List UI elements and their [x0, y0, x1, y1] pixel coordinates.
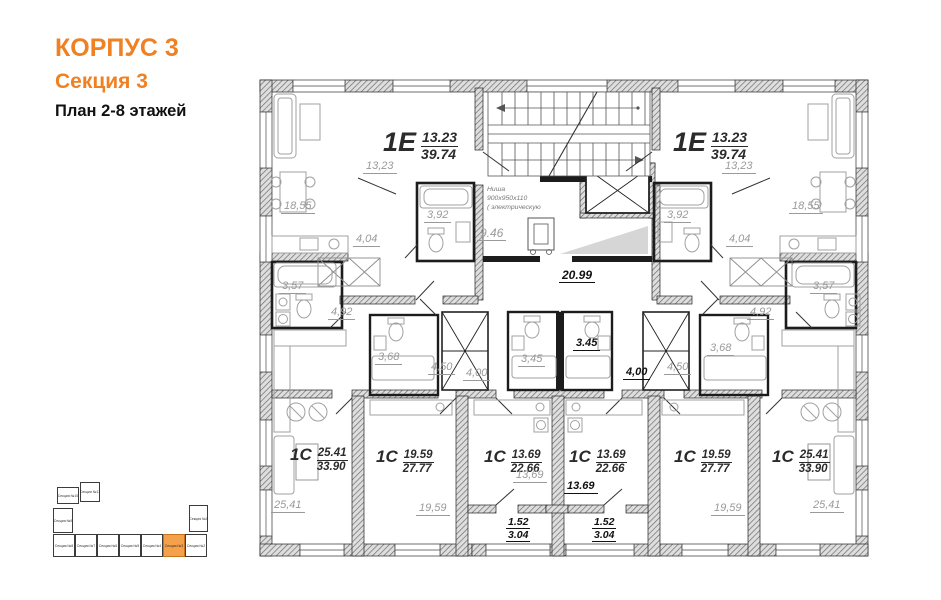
area-label-bath-c5: 3,68	[707, 343, 734, 356]
apartment-area-total: 27.77	[403, 463, 432, 476]
area-label-hall-e-left: 4,04	[353, 234, 380, 247]
apartment-label-1c-5: 1С 19.5927.77	[674, 449, 732, 476]
niche-note-line2: 900х950х110	[487, 195, 577, 204]
apartment-area-living: 25.41	[799, 449, 830, 463]
apartment-type: 1Е	[383, 130, 416, 154]
area-label-room-c2: 19,59	[416, 503, 450, 516]
apartment-label-1e-left: 1Е 13.2339.74	[383, 130, 458, 162]
apartment-type: 1С	[290, 447, 312, 462]
area-label-shaft-right-a: 4,00	[623, 367, 650, 380]
apartment-type: 1Е	[673, 130, 706, 154]
key-plan-section-3-highlighted[interactable]: Секция №3	[163, 534, 185, 557]
apartment-type: 1С	[569, 449, 591, 464]
area-label-dim-left: 13,23	[363, 161, 397, 174]
apartment-area-living: 13.69	[511, 449, 542, 463]
apartment-label-1c-4: 1С 13.6922.66	[569, 449, 627, 476]
balcony-area-full: 3.04	[506, 529, 530, 542]
area-label-bath-e-left: 3,92	[424, 210, 451, 223]
area-label-bath-c2: 3,68	[375, 352, 402, 365]
key-plan-section-6[interactable]: Секция №6	[97, 534, 119, 557]
key-plan-section-11[interactable]: Секция №11	[80, 482, 100, 502]
floor-plan-page: КОРПУС 3 Секция 3 План 2-8 этажей	[0, 0, 941, 600]
balcony-label-right: 1.52 3.04	[592, 516, 616, 542]
niche-note-line1: Ниша	[487, 186, 577, 195]
area-label-bath-c1: 3,57	[279, 281, 306, 294]
area-label-room-c1: 25,41	[271, 500, 305, 513]
area-label-room-c5: 19,59	[711, 503, 745, 516]
area-label-bath-c4: 3.45	[573, 338, 600, 351]
key-plan-section-8[interactable]: Секция №8	[53, 534, 75, 557]
area-label-bath-c6: 3,57	[810, 281, 837, 294]
balcony-area-reduced: 1.52	[592, 516, 616, 529]
area-label-shaft-left-a: 4,50	[428, 362, 455, 375]
balcony-area-reduced: 1.52	[506, 516, 530, 529]
apartment-area-living: 13.23	[711, 130, 748, 147]
apartment-area-total: 33.90	[799, 463, 828, 476]
key-plan-section-4[interactable]: Секция №4	[141, 534, 163, 557]
balcony-area-full: 3.04	[592, 529, 616, 542]
key-plan-section-10[interactable]: Секция №10	[57, 487, 79, 504]
key-plan-section-5[interactable]: Секция №5	[119, 534, 141, 557]
area-label-lobby: 9.46	[477, 227, 506, 241]
apartment-type: 1С	[772, 449, 794, 464]
niche-note: Ниша 900х950х110 ( электрическую	[487, 186, 577, 212]
key-plan-section-2[interactable]: Секция №2	[185, 534, 207, 557]
apartment-area-total: 33.90	[317, 461, 346, 474]
balcony-label-left: 1.52 3.04	[506, 516, 530, 542]
apartment-area-total: 27.77	[701, 463, 730, 476]
staircase	[488, 92, 650, 176]
area-label-living-left: 18,55	[281, 201, 315, 214]
area-label-hall-c6: 4,92	[747, 307, 774, 320]
apartment-area-living: 13.69	[596, 449, 627, 463]
apartment-area-living: 19.59	[701, 449, 732, 463]
apartment-area-total: 39.74	[421, 147, 456, 163]
area-label-hall-e-right: 4,04	[726, 234, 753, 247]
key-plan-section-1[interactable]: Секция №1	[189, 505, 208, 532]
area-label-shaft-right-b: 4,50	[664, 362, 691, 375]
area-label-dim-right: 13,23	[722, 161, 756, 174]
apartment-type: 1С	[674, 449, 696, 464]
area-label-room-c4: 13.69	[564, 481, 598, 494]
apartment-label-1e-right: 1Е 13.2339.74	[673, 130, 748, 162]
apartment-area-living: 13.23	[421, 130, 458, 147]
apartment-label-1c-2: 1С 19.5927.77	[376, 449, 434, 476]
area-label-living-right: 18,55	[789, 201, 823, 214]
apartment-area-living: 19.59	[403, 449, 434, 463]
area-label-room-c3: 13,69	[513, 470, 547, 483]
area-label-corridor: 20.99	[559, 269, 595, 283]
area-label-shaft-left-b: 4,00	[463, 368, 490, 381]
floor-plan-drawing	[0, 0, 941, 600]
apartment-area-living: 25.41	[317, 447, 348, 461]
niche-note-line3: ( электрическую	[487, 204, 577, 213]
apartment-type: 1С	[484, 449, 506, 464]
area-label-bath-e-right: 3,92	[664, 210, 691, 223]
area-label-room-c6: 25,41	[810, 500, 844, 513]
area-label-hall-c1: 4,92	[328, 307, 355, 320]
apartment-area-total: 22.66	[596, 463, 625, 476]
key-plan-section-9[interactable]: Секция №9	[53, 508, 73, 533]
apartment-type: 1С	[376, 449, 398, 464]
apartment-label-1c-6: 1С 25.4133.90	[772, 449, 830, 476]
area-label-bath-c3: 3,45	[518, 354, 545, 367]
apartment-label-1c-1: 1С 25.4133.90	[290, 447, 348, 474]
key-plan-section-7[interactable]: Секция №7	[75, 534, 97, 557]
